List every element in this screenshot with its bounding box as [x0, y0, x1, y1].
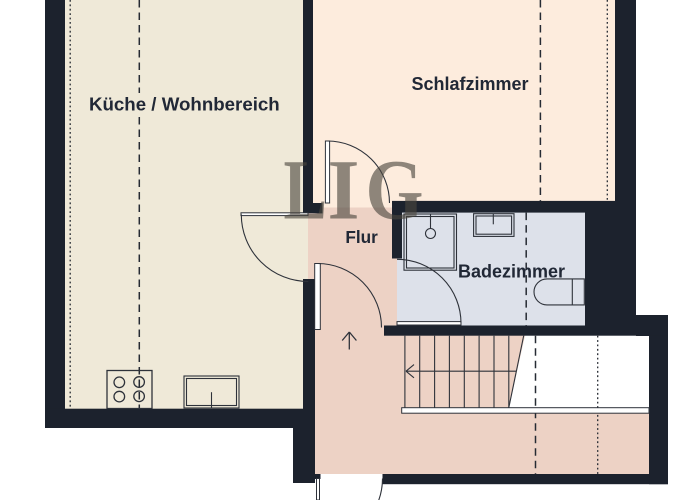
svg-text:Schlafzimmer: Schlafzimmer: [412, 74, 529, 94]
svg-text:Badezimmer: Badezimmer: [458, 262, 565, 282]
svg-text:Küche / Wohnbereich: Küche / Wohnbereich: [89, 94, 280, 115]
svg-text:L: L: [284, 142, 328, 238]
svg-text:I: I: [328, 142, 360, 238]
svg-text:G: G: [366, 142, 424, 238]
svg-text:Flur: Flur: [345, 227, 378, 247]
